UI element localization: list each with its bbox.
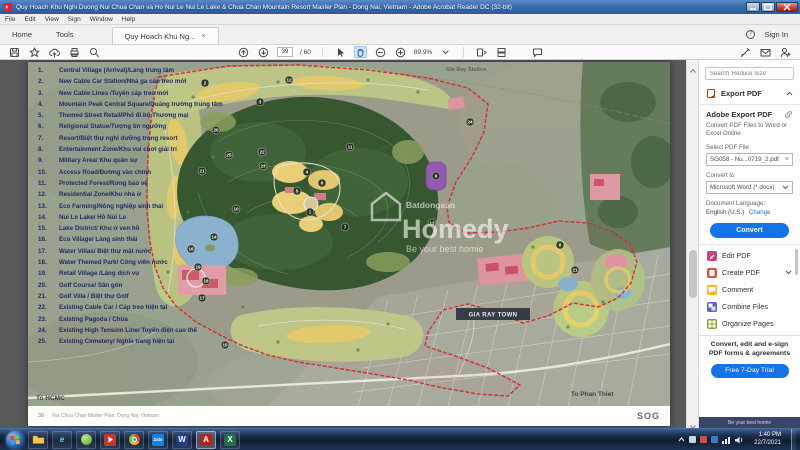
zoom-caret-icon[interactable] [439,46,452,58]
legend-item: 20.Golf Course/ Sân gôn [38,280,253,291]
export-pdf-header[interactable]: Export PDF [699,85,800,105]
fit-width-icon[interactable] [475,46,488,58]
tray-alert-icon[interactable] [700,436,707,443]
search-icon[interactable] [88,46,101,58]
windows-flag-icon [10,435,20,445]
svg-text:7: 7 [344,225,347,230]
panel-scrollbar-thumb[interactable] [795,249,798,275]
star-icon[interactable] [28,46,41,58]
to-phan-thiet-label: To Phan Thiet [571,391,614,398]
chevron-up-icon[interactable] [786,91,793,96]
zoom-out-icon[interactable] [374,46,387,58]
scrollbar-thumb[interactable] [689,250,697,298]
tab-home[interactable]: Home [0,24,44,44]
chrome-icon [129,434,140,445]
svg-text:1: 1 [309,210,312,215]
svg-text:24: 24 [467,120,473,125]
page-total-label: / 60 [300,49,311,56]
legend-item: 2.New Cable Car Station/Nhà ga cáp treo … [38,76,253,87]
card-description: Convert PDF Files to Word or Excel Onlin… [706,122,793,138]
legend-item: 7.Resort/Biệt thự nghỉ dưỡng trong resor… [38,133,253,144]
page-footer: 38 Nui Chua Chan Master Plan, Dong Nai, … [28,406,670,426]
acrobat-app-icon [4,3,12,11]
svg-text:5: 5 [296,189,299,194]
language-label: Document Language: [706,200,793,207]
tab-tools[interactable]: Tools [44,24,86,44]
send-envelope-icon[interactable] [759,46,772,58]
legend-item: 4.Mountain Peak Central Square/Quảng trư… [38,99,253,110]
tray-app-icon[interactable] [689,436,696,443]
legend-item: 23.Existing Pagoda / Chùa [38,314,253,325]
svg-text:6: 6 [321,181,324,186]
taskbar-zalo[interactable]: Zalo [148,431,168,449]
taskbar-word[interactable]: W [172,431,192,449]
taskbar-explorer[interactable] [28,431,48,449]
svg-text:8: 8 [559,243,562,248]
volume-icon[interactable] [735,436,744,444]
document-area: 2 12 3 24 20 11 22 25 23 21 4 9 6 5 [0,60,686,428]
tools-panel: Export PDF Adobe Export PDF Convert PDF … [698,60,800,428]
tab-close-icon[interactable]: × [201,33,205,40]
sheet-title: Nui Chua Chan Master Plan, Dong Nai, Vie… [52,413,637,419]
svg-text:4: 4 [306,170,309,175]
svg-text:GIA RAY TOWN: GIA RAY TOWN [469,313,518,319]
legend-item: 6.Religional Statue/Tượng tín ngưỡng [38,121,253,132]
select-tool-icon[interactable] [334,46,347,58]
taskbar-internet-explorer[interactable]: e [52,431,72,449]
legend-item: 1.Central Village (Arrival)/Làng trung t… [38,65,253,76]
fill-sign-pen-icon[interactable] [739,46,752,58]
sheet-number: 38 [38,413,44,419]
tools-search-box[interactable] [705,67,794,80]
scroll-down-icon[interactable] [689,418,697,426]
legend-item: 16.Eco Village/ Làng sinh thái [38,234,253,245]
gia-ray-town-label: GIA RAY TOWN [456,308,530,320]
taskbar-chrome[interactable] [124,431,144,449]
legend-item: 14.Nui Le Lake/ Hồ Núi Le [38,212,253,223]
menu-help[interactable]: Help [122,16,135,23]
page-view-icon[interactable] [495,46,508,58]
format-value: Microsoft Word (*.docx) [710,184,782,191]
menu-bar: File Edit View Sign Window Help [0,14,800,25]
network-icon[interactable] [722,436,731,444]
gia-ray-station-label: Gia Ray Station [446,67,487,73]
green-app-icon [81,434,92,445]
export-pdf-icon [706,88,717,99]
tool-combine-files[interactable]: Combine Files [699,298,800,315]
zoom-in-icon[interactable] [394,46,407,58]
ie-icon: e [56,434,68,446]
folder-icon [32,434,45,445]
legend-item: 3.New Cable Lines /Tuyến cáp treo mới [38,88,253,99]
svg-text:9: 9 [435,174,438,179]
sog-logo: SOG [637,411,660,421]
legend-item: 21.Golf Villa / Biệt thự Golf [38,291,253,302]
help-icon[interactable]: ? [746,30,755,39]
comment-bubble-icon[interactable] [531,46,544,58]
close-button[interactable] [776,2,798,12]
legend-item: 8.Entertainment Zone/Khu vui chơi giải t… [38,144,253,155]
tab-document[interactable]: Quy Hoach Khu Ng... × [112,27,219,44]
save-icon[interactable] [8,46,21,58]
acrobat-window: Quy Hoach Khu Nghi Duong Nui Chua Chan v… [0,0,800,450]
convert-to-label: Convert to [706,172,793,179]
legend-item: 24.Existing High Tension Line/ Tuyến điệ… [38,325,253,336]
pdf-page: 2 12 3 24 20 11 22 25 23 21 4 9 6 5 [28,62,670,426]
taskbar-green-app[interactable] [76,431,96,449]
selected-file-box[interactable]: SG058 - Nu...0719_2.pdf × [706,153,793,166]
link-icon [784,110,793,119]
svg-text:12: 12 [286,78,292,83]
create-pdf-icon [707,268,717,278]
tool-edit-pdf[interactable]: Edit PDF [699,247,800,264]
taskbar-acrobat[interactable]: A [196,431,216,449]
legend-item: 9.Military Area/ Khu quân sự [38,155,253,166]
page-up-icon[interactable] [237,46,250,58]
adobe-export-card: Adobe Export PDF Convert PDF Files to Wo… [699,105,800,238]
taskbar: e Zalo W A X 1:40 PM 22/7/2021 [0,428,800,450]
share-cloud-icon[interactable] [48,46,61,58]
watermark-strip: Be your best homie [699,417,800,428]
comment-icon [707,285,717,295]
tab-document-label: Quy Hoach Khu Ng... [125,32,196,41]
format-dropdown[interactable]: Microsoft Word (*.docx) [706,181,793,194]
window-title: Quy Hoach Khu Nghi Duong Nui Chua Chan v… [16,4,742,11]
hand-tool-icon[interactable] [354,46,367,58]
map-legend: 1.Central Village (Arrival)/Làng trung t… [38,65,253,347]
tool-comment[interactable]: Comment [699,281,800,298]
menu-edit[interactable]: Edit [24,16,35,23]
menu-file[interactable]: File [5,16,15,23]
excel-icon: X [224,434,236,446]
document-scrollbar[interactable] [686,60,698,428]
svg-text:11: 11 [348,145,353,150]
legend-item: 13.Eco Farming/Nông nghiệp sinh thái [38,201,253,212]
legend-item: 25.Existing Cemetery/ Nghĩa trang hiện t… [38,336,253,347]
legend-item: 5.Themed Street Retail/Phố đi bộ Thương … [38,110,253,121]
clock[interactable]: 1:40 PM 22/7/2021 [748,432,787,448]
legend-item: 12.Residential Zone/Khu nhà ở [38,189,253,200]
media-play-icon [104,434,116,446]
promo-text: Convert, edit and e-sign PDF forms & agr… [699,335,800,359]
combine-files-icon [707,302,717,312]
legend-item: 10.Access Road/Đường vào chính [38,167,253,178]
title-bar: Quy Hoach Khu Nghi Duong Nui Chua Chan v… [0,0,800,14]
legend-item: 15.Lake District/ Khu ở ven hồ [38,223,253,234]
acrobat-icon: A [200,434,212,446]
clock-date: 22/7/2021 [754,440,781,448]
system-tray: 1:40 PM 22/7/2021 [678,429,798,450]
show-desktop-button[interactable] [791,429,796,450]
svg-text:Batdongsan: Batdongsan [406,200,455,210]
legend-item: 19.Retail Village /Làng dịch vụ [38,268,253,279]
tool-organize-pages[interactable]: Organize Pages [699,315,800,332]
card-title: Adobe Export PDF [706,110,784,119]
svg-text:Be your best homie: Be your best homie [406,244,484,254]
menu-view[interactable]: View [45,16,59,23]
legend-item: 17.Water Villas/ Biệt thự mặt nước [38,246,253,257]
menu-sign[interactable]: Sign [68,16,81,23]
chevron-down-icon [782,185,789,190]
remove-file-icon[interactable]: × [785,156,789,163]
page-down-icon[interactable] [257,46,270,58]
legend-item: 22.Existing Cable Car / Cáp treo hiện tạ… [38,302,253,313]
start-button[interactable] [6,431,24,449]
page-number-input[interactable]: 39 [277,47,293,57]
legend-item: 11.Protected Forest/Rừng bảo vệ [38,178,253,189]
minimize-button[interactable] [746,2,760,12]
tools-search-input[interactable] [706,71,793,77]
legend-item: 18.Water Themed Park/ Công viên nước [38,257,253,268]
svg-text:3: 3 [259,100,262,105]
scroll-up-icon[interactable] [689,62,697,70]
to-hcmc-label: To HCMC [36,395,65,402]
menu-window[interactable]: Window [90,16,113,23]
tool-create-pdf[interactable]: Create PDF [699,264,800,281]
free-trial-button[interactable]: Free 7-Day Trial [711,364,789,378]
tab-bar: Home Tools Quy Hoach Khu Ng... × ? Sign … [0,25,800,45]
change-language-link[interactable]: Change [749,209,771,216]
zalo-icon: Zalo [152,434,164,446]
tray-shield-icon[interactable] [711,436,718,443]
convert-button[interactable]: Convert [710,223,789,238]
organize-pages-icon [707,319,717,329]
edit-pdf-icon [707,251,717,261]
svg-text:21: 21 [572,268,578,273]
sign-in-button[interactable]: Sign In [765,30,788,39]
chevron-down-icon[interactable] [785,270,792,275]
select-file-label: Select PDF File [706,144,793,151]
print-icon[interactable] [68,46,81,58]
add-person-icon[interactable] [779,46,792,58]
zoom-level-dropdown[interactable]: 89.9% [414,49,432,56]
taskbar-excel[interactable]: X [220,431,240,449]
svg-text:Homedy: Homedy [402,214,509,244]
svg-text:23: 23 [260,164,266,169]
taskbar-media-app[interactable] [100,431,120,449]
svg-text:22: 22 [259,150,265,155]
maximize-button[interactable] [761,2,775,12]
language-value: English (U.S.) [706,209,744,216]
tools-list: Edit PDF Create PDF Comment Combine File… [699,244,800,332]
selected-file-name: SG058 - Nu...0719_2.pdf [710,156,785,163]
clock-time: 1:40 PM [754,432,781,440]
word-icon: W [176,434,188,446]
tray-expand-icon[interactable] [678,437,685,442]
export-pdf-label: Export PDF [721,89,782,98]
toolbar: 39 / 60 89.9% [0,45,800,60]
